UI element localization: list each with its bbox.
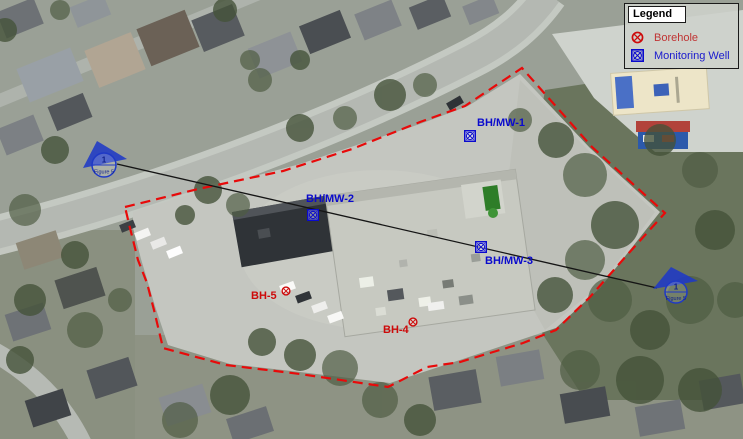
label-monitoring-well-3: BH/MW-3 — [485, 255, 533, 267]
monitoring-well-icon-bhmw3 — [476, 242, 487, 253]
legend-label-borehole: Borehole — [654, 32, 698, 44]
site-plan-figure: 1 Figure 5 1 Figure 5 BH/MW-1 BH/MW-2 BH… — [0, 0, 743, 439]
legend-item-borehole: Borehole — [631, 31, 735, 44]
borehole-icon — [631, 31, 644, 44]
monitoring-well-icon-bhmw1 — [465, 131, 476, 142]
legend-label-monitoring-well: Monitoring Well — [654, 50, 730, 62]
label-borehole-4: BH-4 — [383, 324, 409, 336]
section-figure-ref: Figure 5 — [94, 170, 114, 176]
borehole-icon-bh5 — [282, 287, 290, 295]
section-number: 1 — [674, 283, 679, 292]
monitoring-well-icon-bhmw2 — [308, 210, 319, 221]
section-figure-ref: Figure 5 — [666, 296, 686, 302]
legend-title: Legend — [628, 6, 686, 23]
label-monitoring-well-1: BH/MW-1 — [477, 117, 525, 129]
legend-items: Borehole Monitoring Well — [631, 31, 735, 62]
monitoring-well-icon — [631, 49, 644, 62]
label-monitoring-well-2: BH/MW-2 — [306, 193, 354, 205]
legend-item-monitoring-well: Monitoring Well — [631, 49, 735, 62]
legend: Legend Borehole Monitoring Well — [624, 3, 739, 69]
label-borehole-5: BH-5 — [251, 290, 277, 302]
borehole-icon-bh4 — [409, 318, 417, 326]
section-number: 1 — [102, 156, 107, 165]
